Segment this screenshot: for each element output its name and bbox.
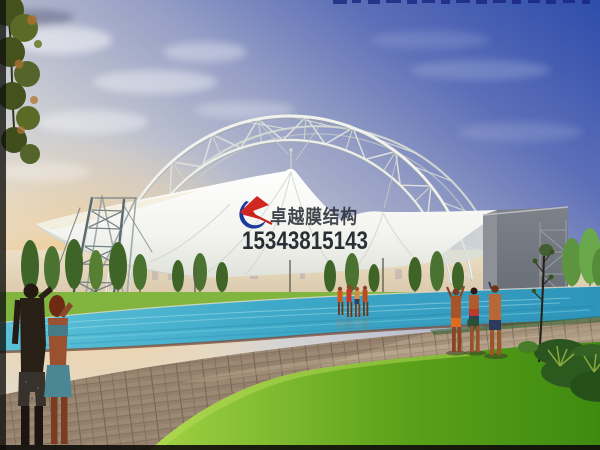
watermark-company-name: 卓越膜结构	[270, 205, 358, 228]
scene-canvas: 卓越膜结构 15343815143	[0, 0, 600, 450]
left-edge-strip	[0, 0, 6, 450]
bottom-edge-strip	[0, 445, 600, 450]
poolside-group-right	[446, 285, 508, 359]
watermark-phone-number: 15343815143	[242, 227, 368, 255]
architectural-rendering-image: 卓越膜结构 15343815143	[0, 0, 600, 450]
foreground-couple	[12, 284, 73, 446]
